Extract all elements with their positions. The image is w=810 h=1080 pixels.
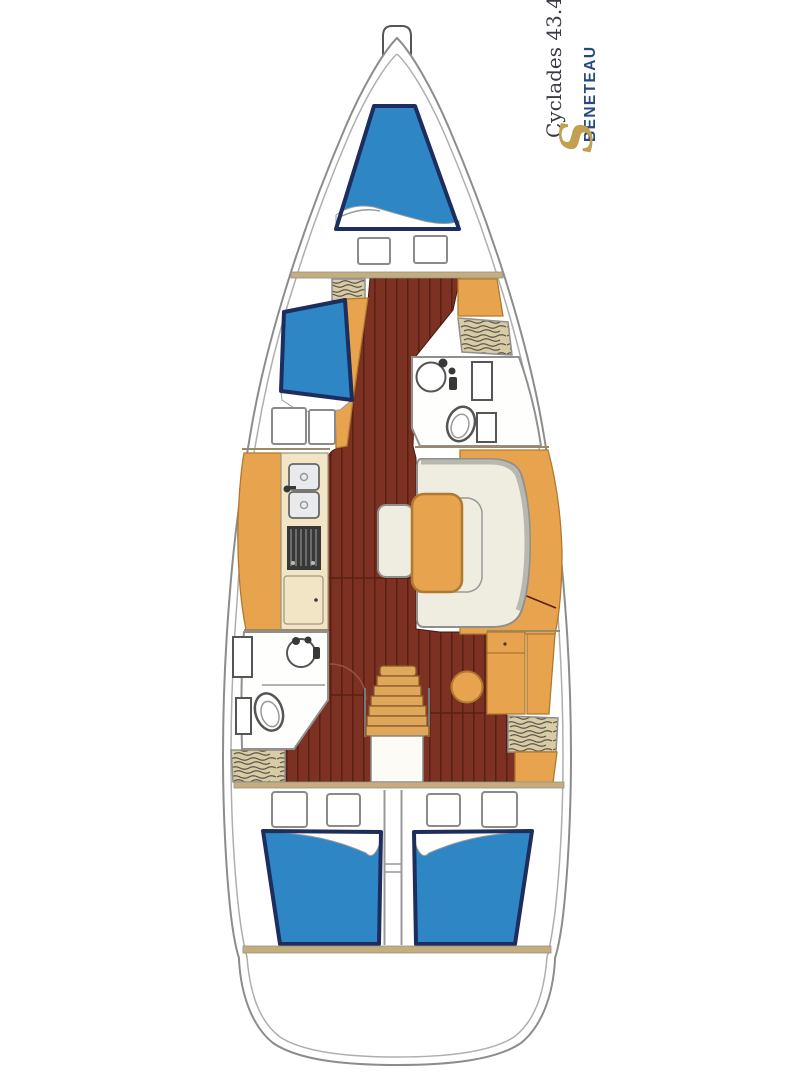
port-berth-mattress bbox=[281, 300, 352, 400]
aft-head-sink bbox=[287, 639, 315, 667]
forward-head-faucet bbox=[439, 359, 448, 368]
companionway-landing bbox=[371, 736, 423, 782]
aft-stbd-pillow-1 bbox=[427, 794, 460, 826]
saloon-bench bbox=[378, 505, 413, 577]
aft-port-pillow-1 bbox=[272, 792, 307, 827]
branding: Cyclades 43.4 BENETEAU S bbox=[542, 0, 603, 153]
nav-stool bbox=[452, 672, 483, 703]
saloon-table bbox=[412, 494, 462, 592]
chart-table-handle bbox=[503, 642, 506, 645]
nav-lower-cabinet bbox=[515, 752, 557, 783]
wardrobe-starboard bbox=[458, 279, 503, 316]
aft-stbd-pillow-2 bbox=[482, 792, 517, 827]
floor-plan-svg: Cyclades 43.4 BENETEAU S bbox=[0, 0, 810, 1080]
forward-hatch-left bbox=[358, 238, 390, 264]
galley bbox=[238, 453, 328, 630]
storage-shelves-starboard bbox=[458, 318, 512, 355]
bulkhead-forward bbox=[291, 272, 503, 278]
bulkhead-transom bbox=[243, 946, 551, 953]
galley-sink-right bbox=[289, 492, 319, 518]
bulkhead-aft-cabins bbox=[234, 782, 564, 788]
forward-hatch-right bbox=[414, 236, 447, 263]
port-step-box-1 bbox=[272, 408, 306, 444]
aft-head-storage bbox=[231, 750, 285, 782]
oven-handle bbox=[314, 598, 318, 602]
forward-head-door bbox=[472, 362, 492, 400]
aft-head-locker-1 bbox=[233, 637, 252, 677]
aft-head-faucet bbox=[292, 637, 300, 645]
model-name-label: Cyclades 43.4 bbox=[542, 0, 566, 138]
aft-head-locker-2 bbox=[236, 698, 251, 734]
forward-head-shelf bbox=[477, 413, 496, 442]
galley-hull-cabinet bbox=[238, 453, 281, 630]
port-step-box-2 bbox=[309, 410, 335, 444]
beneteau-logo-icon: S bbox=[552, 121, 603, 153]
yacht-floor-plan: Cyclades 43.4 BENETEAU S bbox=[0, 0, 810, 1080]
nav-storage-shelves bbox=[508, 716, 558, 752]
aft-port-pillow-2 bbox=[327, 794, 360, 826]
